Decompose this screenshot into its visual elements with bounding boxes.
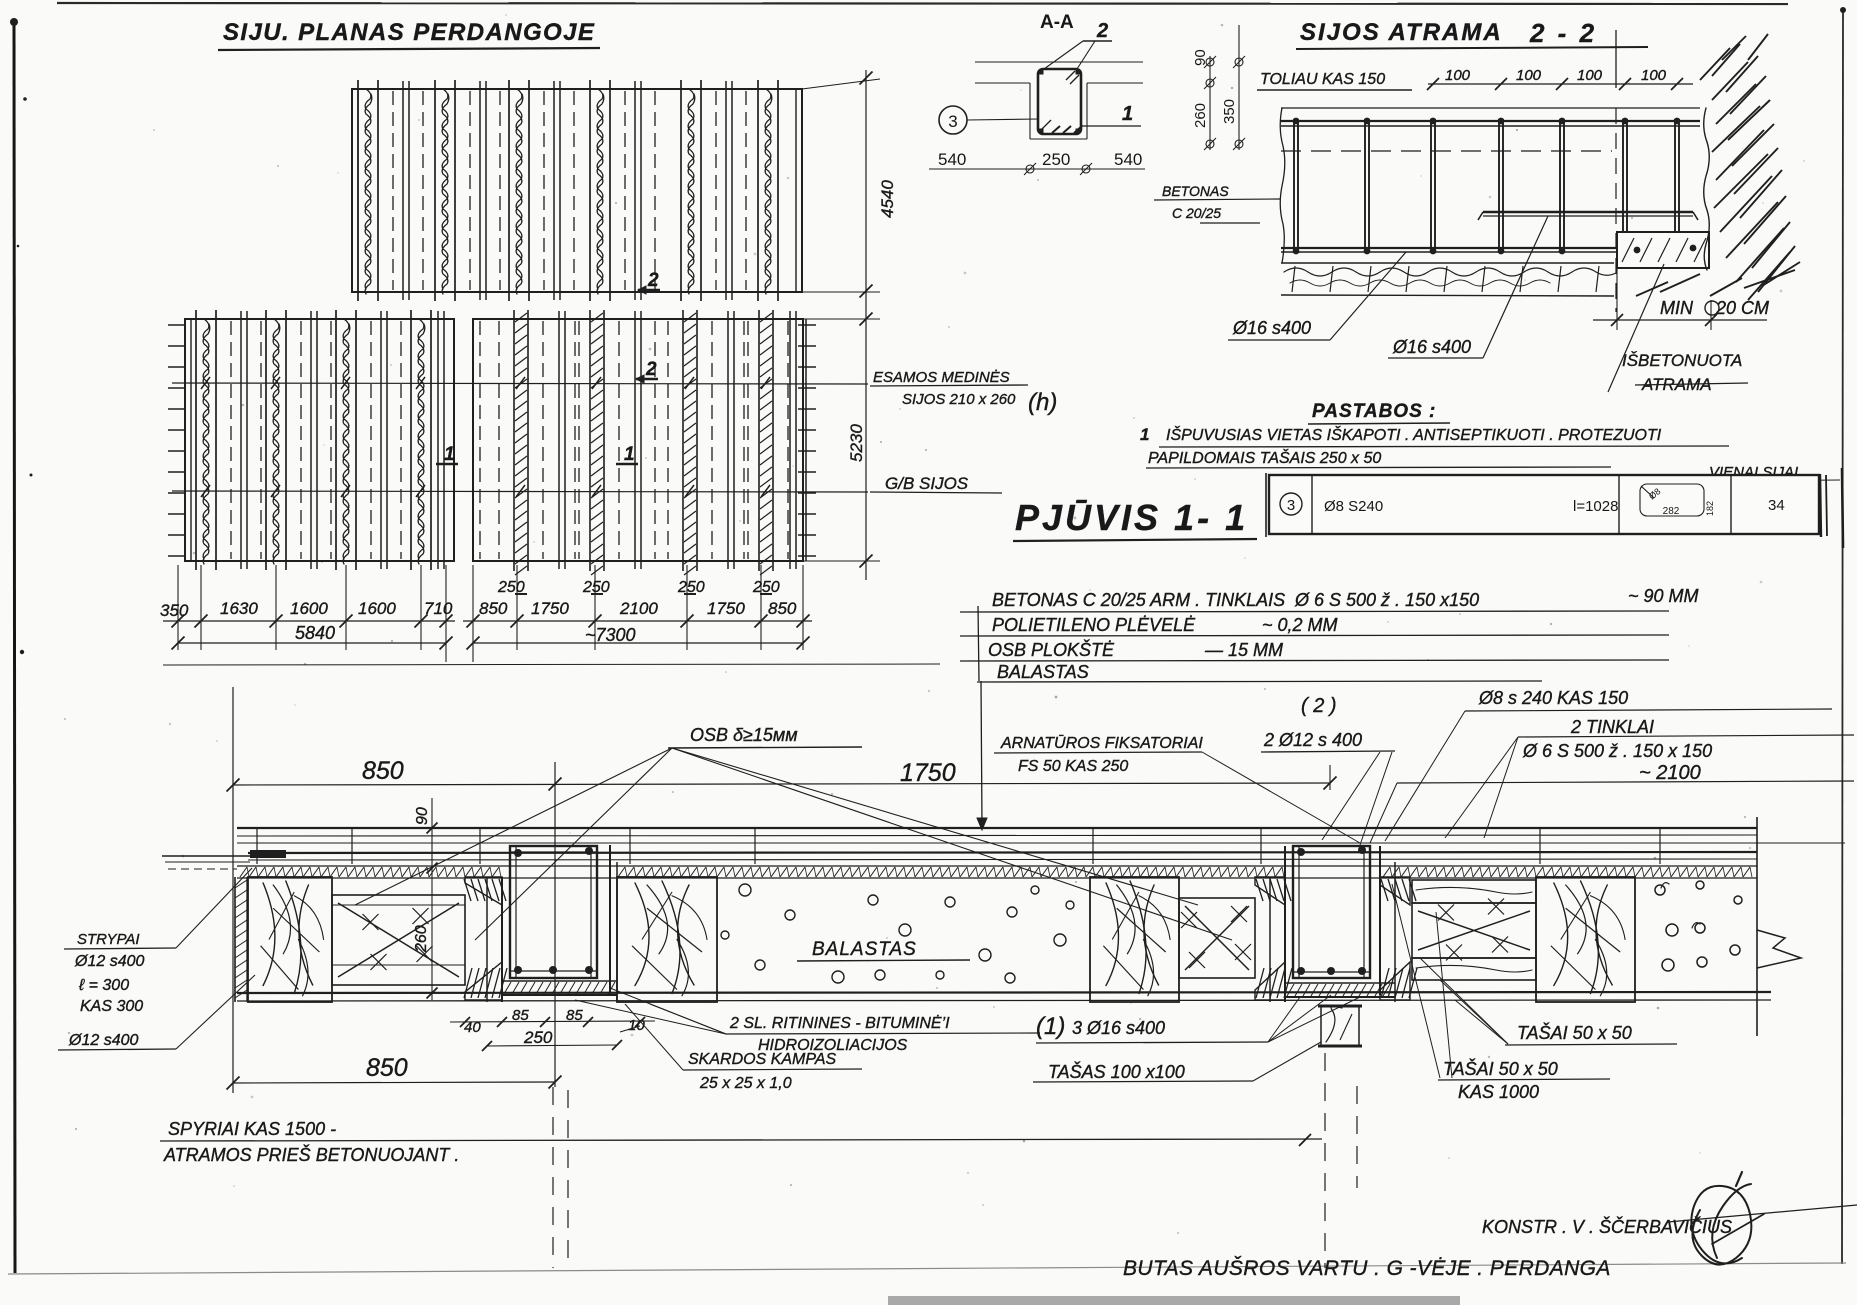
svg-text:OSB δ≥15ᴍᴍ: OSB δ≥15ᴍᴍ	[690, 725, 798, 745]
svg-text:2100: 2100	[619, 599, 658, 618]
svg-text:KAS 1000: KAS 1000	[1458, 1082, 1539, 1102]
svg-text:IŠPUVUSIAS VIETAS IŠKAPOTI .: IŠPUVUSIAS VIETAS IŠKAPOTI . ANTISEPTIKU…	[1166, 425, 1662, 444]
svg-text:FS 50 KAS 250: FS 50 KAS 250	[1018, 758, 1128, 775]
svg-text:BALASTAS: BALASTAS	[997, 662, 1089, 682]
svg-text:90: 90	[414, 807, 431, 825]
svg-text:Ø 6 S 500 ž . 150 x 150: Ø 6 S 500 ž . 150 x 150	[1522, 741, 1712, 761]
svg-text:85: 85	[566, 1007, 583, 1024]
svg-text:Ø16 s400: Ø16 s400	[1232, 318, 1311, 338]
svg-text:Ø12 s400: Ø12 s400	[74, 953, 144, 970]
svg-text:1600: 1600	[290, 599, 328, 618]
svg-text:1: 1	[624, 444, 635, 465]
svg-text:260: 260	[413, 925, 430, 953]
svg-text:~ 0,2 MM: ~ 0,2 MM	[1262, 615, 1338, 635]
svg-text:(1): (1)	[1036, 1013, 1065, 1040]
svg-text:C 20/25: C 20/25	[1172, 205, 1221, 221]
svg-text:100: 100	[1445, 67, 1471, 84]
svg-text:SKARDOS KAMPAS: SKARDOS KAMPAS	[688, 1051, 837, 1068]
svg-text:TAŠAS 100 x100: TAŠAS 100 x100	[1048, 1061, 1185, 1082]
svg-text:IŠBETONUOTA: IŠBETONUOTA	[1622, 351, 1742, 370]
svg-text:SIJOS ATRAMA: SIJOS ATRAMA	[1300, 19, 1503, 46]
svg-text:PJŪVIS 1- 1: PJŪVIS 1- 1	[1015, 497, 1248, 538]
svg-text:850: 850	[768, 599, 797, 618]
svg-text:Ø16 s400: Ø16 s400	[1392, 337, 1471, 357]
svg-text:KAS 300: KAS 300	[80, 998, 143, 1015]
svg-text:Ø 6 S 500 ž . 150 x150: Ø 6 S 500 ž . 150 x150	[1294, 590, 1479, 610]
svg-text:260: 260	[1192, 103, 1209, 128]
svg-text:ATRAMOS PRIEŠ BETONUOJANT .: ATRAMOS PRIEŠ BETONUOJANT .	[163, 1144, 459, 1165]
svg-text:1: 1	[1122, 103, 1133, 125]
svg-text:STRYPAI: STRYPAI	[77, 931, 140, 948]
svg-text:2: 2	[1096, 20, 1108, 42]
svg-text:1: 1	[1140, 425, 1149, 444]
svg-text:34: 34	[1768, 497, 1785, 514]
svg-text:2 TINKLAI: 2 TINKLAI	[1570, 717, 1654, 737]
svg-text:BUTAS AUŠROS VARTU . G -VĖJ: BUTAS AUŠROS VARTU . G -VĖJE . PERDANGA	[1123, 1257, 1611, 1280]
svg-text:1750: 1750	[707, 599, 745, 618]
svg-text:350: 350	[1221, 99, 1238, 124]
svg-text:100: 100	[1577, 67, 1603, 84]
svg-text:ARNATŪROS FIKSATORIAI: ARNATŪROS FIKSATORIAI	[1000, 734, 1203, 752]
svg-text:710: 710	[424, 599, 453, 618]
svg-text:SPYRIAI KAS 1500 -: SPYRIAI KAS 1500 -	[168, 1119, 336, 1139]
svg-text:3 Ø16 s400: 3 Ø16 s400	[1072, 1018, 1165, 1038]
svg-text:BALASTAS: BALASTAS	[812, 939, 917, 960]
svg-text:~ 90 MM: ~ 90 MM	[1628, 586, 1699, 606]
svg-text:2: 2	[645, 359, 657, 380]
svg-text:100: 100	[1516, 67, 1542, 84]
svg-text:A-A: A-A	[1040, 12, 1074, 33]
svg-text:2 SL. RITININES - BITUMINĖ’I: 2 SL. RITININES - BITUMINĖ’I	[729, 1013, 950, 1032]
svg-text:10: 10	[628, 1017, 645, 1034]
svg-text:MIN: MIN	[1660, 298, 1694, 318]
svg-text:Ø8 S240: Ø8 S240	[1324, 498, 1383, 515]
svg-text:POLIETILENO PLĖVELĖ: POLIETILENO PLĖVELĖ	[992, 615, 1196, 635]
svg-text:1: 1	[444, 444, 455, 465]
svg-text:40: 40	[464, 1019, 481, 1036]
svg-text:OSB PLOKŠTĖ: OSB PLOKŠTĖ	[988, 639, 1115, 660]
svg-text:~7300: ~7300	[585, 625, 636, 645]
svg-text:2 - 2: 2 - 2	[1529, 18, 1597, 48]
svg-text:BETONAS C 20/25 ARM . TINKL: BETONAS C 20/25 ARM . TINKLAIS	[992, 590, 1285, 610]
svg-text:90: 90	[1192, 49, 1209, 66]
svg-text:85: 85	[512, 1007, 529, 1024]
svg-text:SIJOS 210 x 260: SIJOS 210 x 260	[902, 391, 1016, 408]
svg-text:1600: 1600	[358, 599, 396, 618]
svg-text:25 x 25 x 1,0: 25 x 25 x 1,0	[699, 1075, 792, 1092]
svg-text:250: 250	[523, 1028, 553, 1047]
svg-text:ESAMOS MEDINĖS: ESAMOS MEDINĖS	[873, 369, 1010, 386]
svg-text:850: 850	[366, 1054, 408, 1082]
svg-text:3: 3	[1287, 497, 1295, 514]
svg-text:TAŠAI 50 x 50: TAŠAI 50 x 50	[1443, 1058, 1558, 1079]
svg-text:— 15 MM: — 15 MM	[1204, 640, 1283, 660]
svg-text:250: 250	[1042, 150, 1070, 169]
svg-text:540: 540	[1114, 150, 1142, 169]
svg-text:1750: 1750	[531, 599, 569, 618]
svg-text:~ 2100: ~ 2100	[1639, 762, 1701, 784]
svg-text:5840: 5840	[295, 623, 335, 643]
svg-text:2 Ø12 s 400: 2 Ø12 s 400	[1263, 730, 1362, 750]
svg-text:4540: 4540	[878, 180, 897, 218]
svg-text:G/B SIJOS: G/B SIJOS	[885, 474, 969, 493]
svg-text:l=1028: l=1028	[1573, 498, 1618, 515]
svg-text:SIJU. PLANAS PERDANGOJE: SIJU. PLANAS PERDANGOJE	[223, 19, 595, 46]
svg-text:850: 850	[362, 757, 404, 785]
svg-text:350: 350	[160, 601, 189, 620]
svg-text:( 2 ): ( 2 )	[1301, 695, 1337, 717]
svg-text:282: 282	[1663, 506, 1680, 517]
svg-text:1630: 1630	[220, 599, 258, 618]
svg-text:Ø12 s400: Ø12 s400	[68, 1032, 138, 1049]
svg-text:ℓ = 300: ℓ = 300	[78, 977, 129, 994]
svg-text:PASTABOS :: PASTABOS :	[1312, 401, 1436, 422]
svg-text:3: 3	[948, 112, 957, 131]
svg-text:20 CM: 20 CM	[1715, 298, 1769, 318]
svg-text:TOLIAU KAS 150: TOLIAU KAS 150	[1260, 71, 1385, 88]
svg-text:BETONAS: BETONAS	[1162, 183, 1229, 199]
svg-text:(h): (h)	[1028, 389, 1057, 416]
svg-text:PAPILDOMAIS TAŠAIS 250 x 50: PAPILDOMAIS TAŠAIS 250 x 50	[1148, 448, 1381, 467]
svg-text:540: 540	[938, 150, 966, 169]
svg-text:Ø8 s 240 KAS 150: Ø8 s 240 KAS 150	[1478, 688, 1628, 708]
svg-text:TAŠAI 50 x 50: TAŠAI 50 x 50	[1517, 1022, 1632, 1043]
svg-text:2: 2	[647, 270, 659, 291]
svg-text:1750: 1750	[900, 759, 956, 787]
svg-text:850: 850	[479, 599, 508, 618]
svg-text:5230: 5230	[847, 424, 866, 462]
svg-text:100: 100	[1641, 67, 1667, 84]
svg-text:182: 182	[1705, 501, 1715, 516]
